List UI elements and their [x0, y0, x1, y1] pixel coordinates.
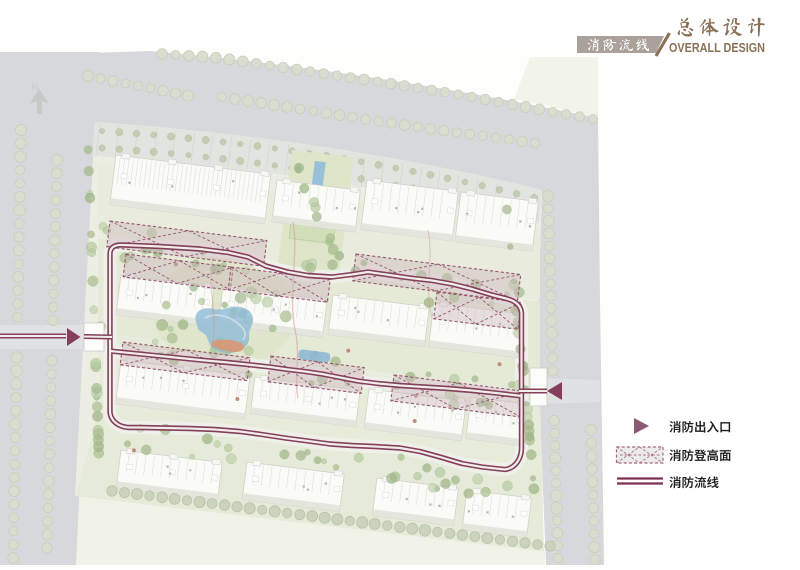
svg-text:OVERALL DESIGN: OVERALL DESIGN	[669, 40, 765, 55]
svg-text:N: N	[31, 82, 38, 93]
